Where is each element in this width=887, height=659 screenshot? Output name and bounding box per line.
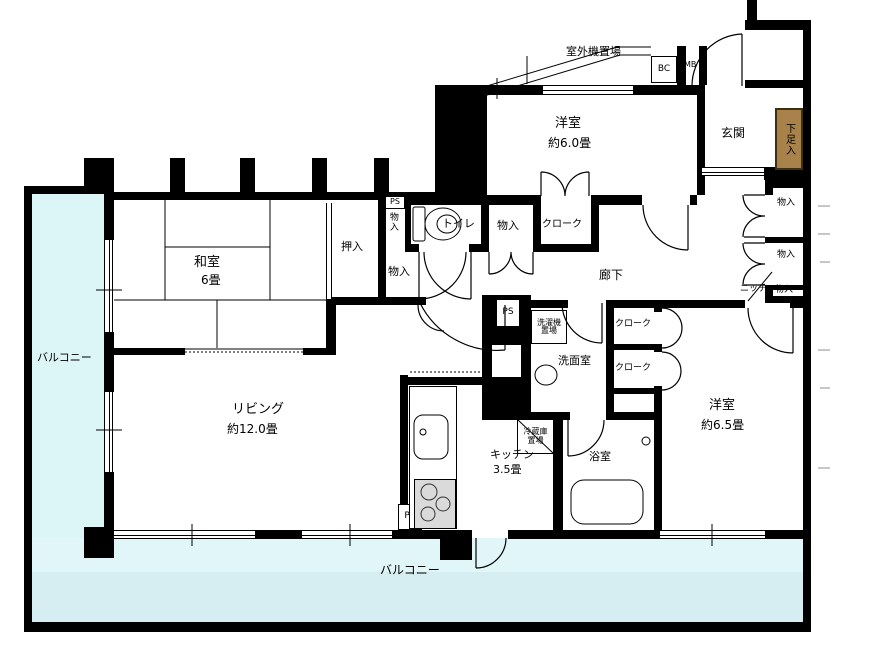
- balcony-left-label: バルコニー: [37, 352, 92, 364]
- wall: [24, 622, 811, 632]
- wall: [765, 237, 773, 243]
- wall: [654, 386, 662, 530]
- wall: [606, 308, 614, 420]
- window: [114, 530, 255, 539]
- wall: [606, 300, 745, 308]
- washer-pan: 洗濯機 置場: [531, 310, 567, 344]
- wall: [374, 158, 389, 194]
- wall: [606, 412, 654, 420]
- balcony-bottom-label: バルコニー: [380, 564, 440, 577]
- japanese-name: 和室: [194, 256, 220, 270]
- toilet-tank: [413, 207, 425, 241]
- wall: [408, 377, 485, 385]
- window: [302, 530, 392, 539]
- wall: [633, 85, 697, 95]
- wall: [697, 85, 705, 195]
- window: [543, 85, 633, 95]
- wall: [326, 297, 426, 305]
- toilet-label: トイレ: [442, 218, 475, 230]
- wall: [553, 420, 563, 530]
- stove: [414, 479, 456, 529]
- shower-fitting: [642, 437, 650, 445]
- wall: [699, 46, 707, 85]
- closet-passage-label: 物入: [388, 266, 410, 278]
- wall: [440, 530, 472, 560]
- wall: [114, 348, 185, 355]
- cloak-east-lower-label: クローク: [615, 364, 651, 374]
- cloak-north-label: クローク: [542, 219, 582, 230]
- closet-east2-label: 物入: [777, 251, 795, 261]
- closet-mid-label: 物入: [497, 220, 519, 232]
- bathtub: [571, 480, 643, 524]
- oshiire-label: 押入: [341, 241, 363, 253]
- ps-north-label: PS: [390, 198, 400, 206]
- wall: [654, 300, 662, 312]
- wall: [303, 348, 330, 355]
- wall: [765, 530, 803, 539]
- cloak-east-doors: [662, 308, 682, 390]
- closet-east3-label: 物入: [775, 286, 793, 296]
- wall: [312, 158, 327, 194]
- western6-door: [643, 205, 688, 250]
- washer-label-2: 置場: [541, 327, 557, 335]
- wall: [521, 345, 531, 415]
- bathroom-label: 浴室: [589, 451, 611, 463]
- wall: [104, 527, 114, 538]
- window: [104, 392, 113, 472]
- sliding-door-oshiire: [326, 203, 332, 299]
- balcony-left: [32, 194, 104, 538]
- closet-mid-doors: [489, 252, 533, 274]
- mb-label: MB: [684, 61, 696, 70]
- washroom-label: 洗面室: [558, 355, 591, 367]
- living-size: 約12.0畳: [227, 423, 278, 436]
- closet-east1-label: 物入: [777, 199, 795, 209]
- wall: [104, 472, 114, 530]
- wall: [104, 200, 114, 240]
- washbasin: [535, 365, 557, 385]
- ps-box-north: PS: [385, 196, 405, 209]
- closet-east-doors: [743, 195, 765, 285]
- shoe-cabinet: 下足入: [775, 108, 803, 170]
- wall: [255, 530, 302, 539]
- cloak-north-doors: [541, 172, 589, 196]
- wall: [773, 237, 803, 243]
- wall: [614, 388, 654, 394]
- outdoor-unit-label: 室外機置場: [566, 46, 621, 58]
- wall: [482, 295, 492, 385]
- wall: [240, 158, 255, 194]
- wall: [790, 300, 803, 308]
- wall: [591, 195, 642, 205]
- closet-side-label: 物入: [387, 212, 397, 250]
- wall: [508, 530, 660, 539]
- wall: [170, 158, 185, 194]
- western65-name: 洋室: [709, 399, 735, 413]
- bc-box: BC: [651, 56, 677, 83]
- window: [660, 530, 765, 539]
- wall: [614, 344, 654, 350]
- window: [104, 240, 113, 332]
- wall: [765, 188, 773, 195]
- hallway-label: 廊下: [599, 269, 623, 282]
- ps-center-label: PS: [502, 308, 513, 317]
- wall: [378, 195, 386, 305]
- niche-label: ニッチ: [740, 285, 767, 295]
- wall: [765, 180, 803, 188]
- wall: [469, 244, 489, 252]
- wall: [533, 244, 599, 252]
- wall: [104, 332, 114, 392]
- wall: [24, 186, 32, 632]
- living-name: リビング: [232, 403, 284, 417]
- bc-label: BC: [658, 65, 670, 74]
- entrance-label: 玄関: [721, 127, 745, 140]
- western65-size: 約6.5畳: [701, 419, 744, 432]
- japanese-size: 6畳: [201, 274, 221, 287]
- shoe-cabinet-label: 下足入: [782, 123, 797, 156]
- kitchen-size: 3.5畳: [493, 464, 522, 476]
- wall: [392, 530, 440, 539]
- fixtures: [413, 207, 772, 524]
- wall: [654, 344, 662, 352]
- corridor-doors: [419, 252, 471, 299]
- wall: [690, 195, 697, 205]
- western65-door: [748, 308, 793, 353]
- western6-size: 約6.0畳: [548, 137, 591, 150]
- washroom-door: [562, 303, 602, 343]
- wall: [747, 0, 757, 28]
- wall: [435, 85, 487, 200]
- floor-plan: BC PS PS PS 洗濯機 置場 冷蔵庫 置場 下足入 室外機置場 MB 洋…: [0, 0, 887, 659]
- cloak-east-upper-label: クローク: [615, 320, 651, 330]
- wall: [487, 85, 543, 95]
- ps-box-center: PS: [496, 299, 520, 327]
- western6-name: 洋室: [555, 117, 581, 131]
- fridge-label-2: 置場: [528, 437, 544, 445]
- neighbor-dashes: [818, 206, 830, 468]
- entrance-step: [702, 167, 764, 176]
- wall: [745, 80, 803, 88]
- wall: [405, 244, 419, 252]
- kitchen-name: キッチン: [490, 449, 534, 461]
- wall: [84, 158, 114, 194]
- wall: [803, 28, 811, 632]
